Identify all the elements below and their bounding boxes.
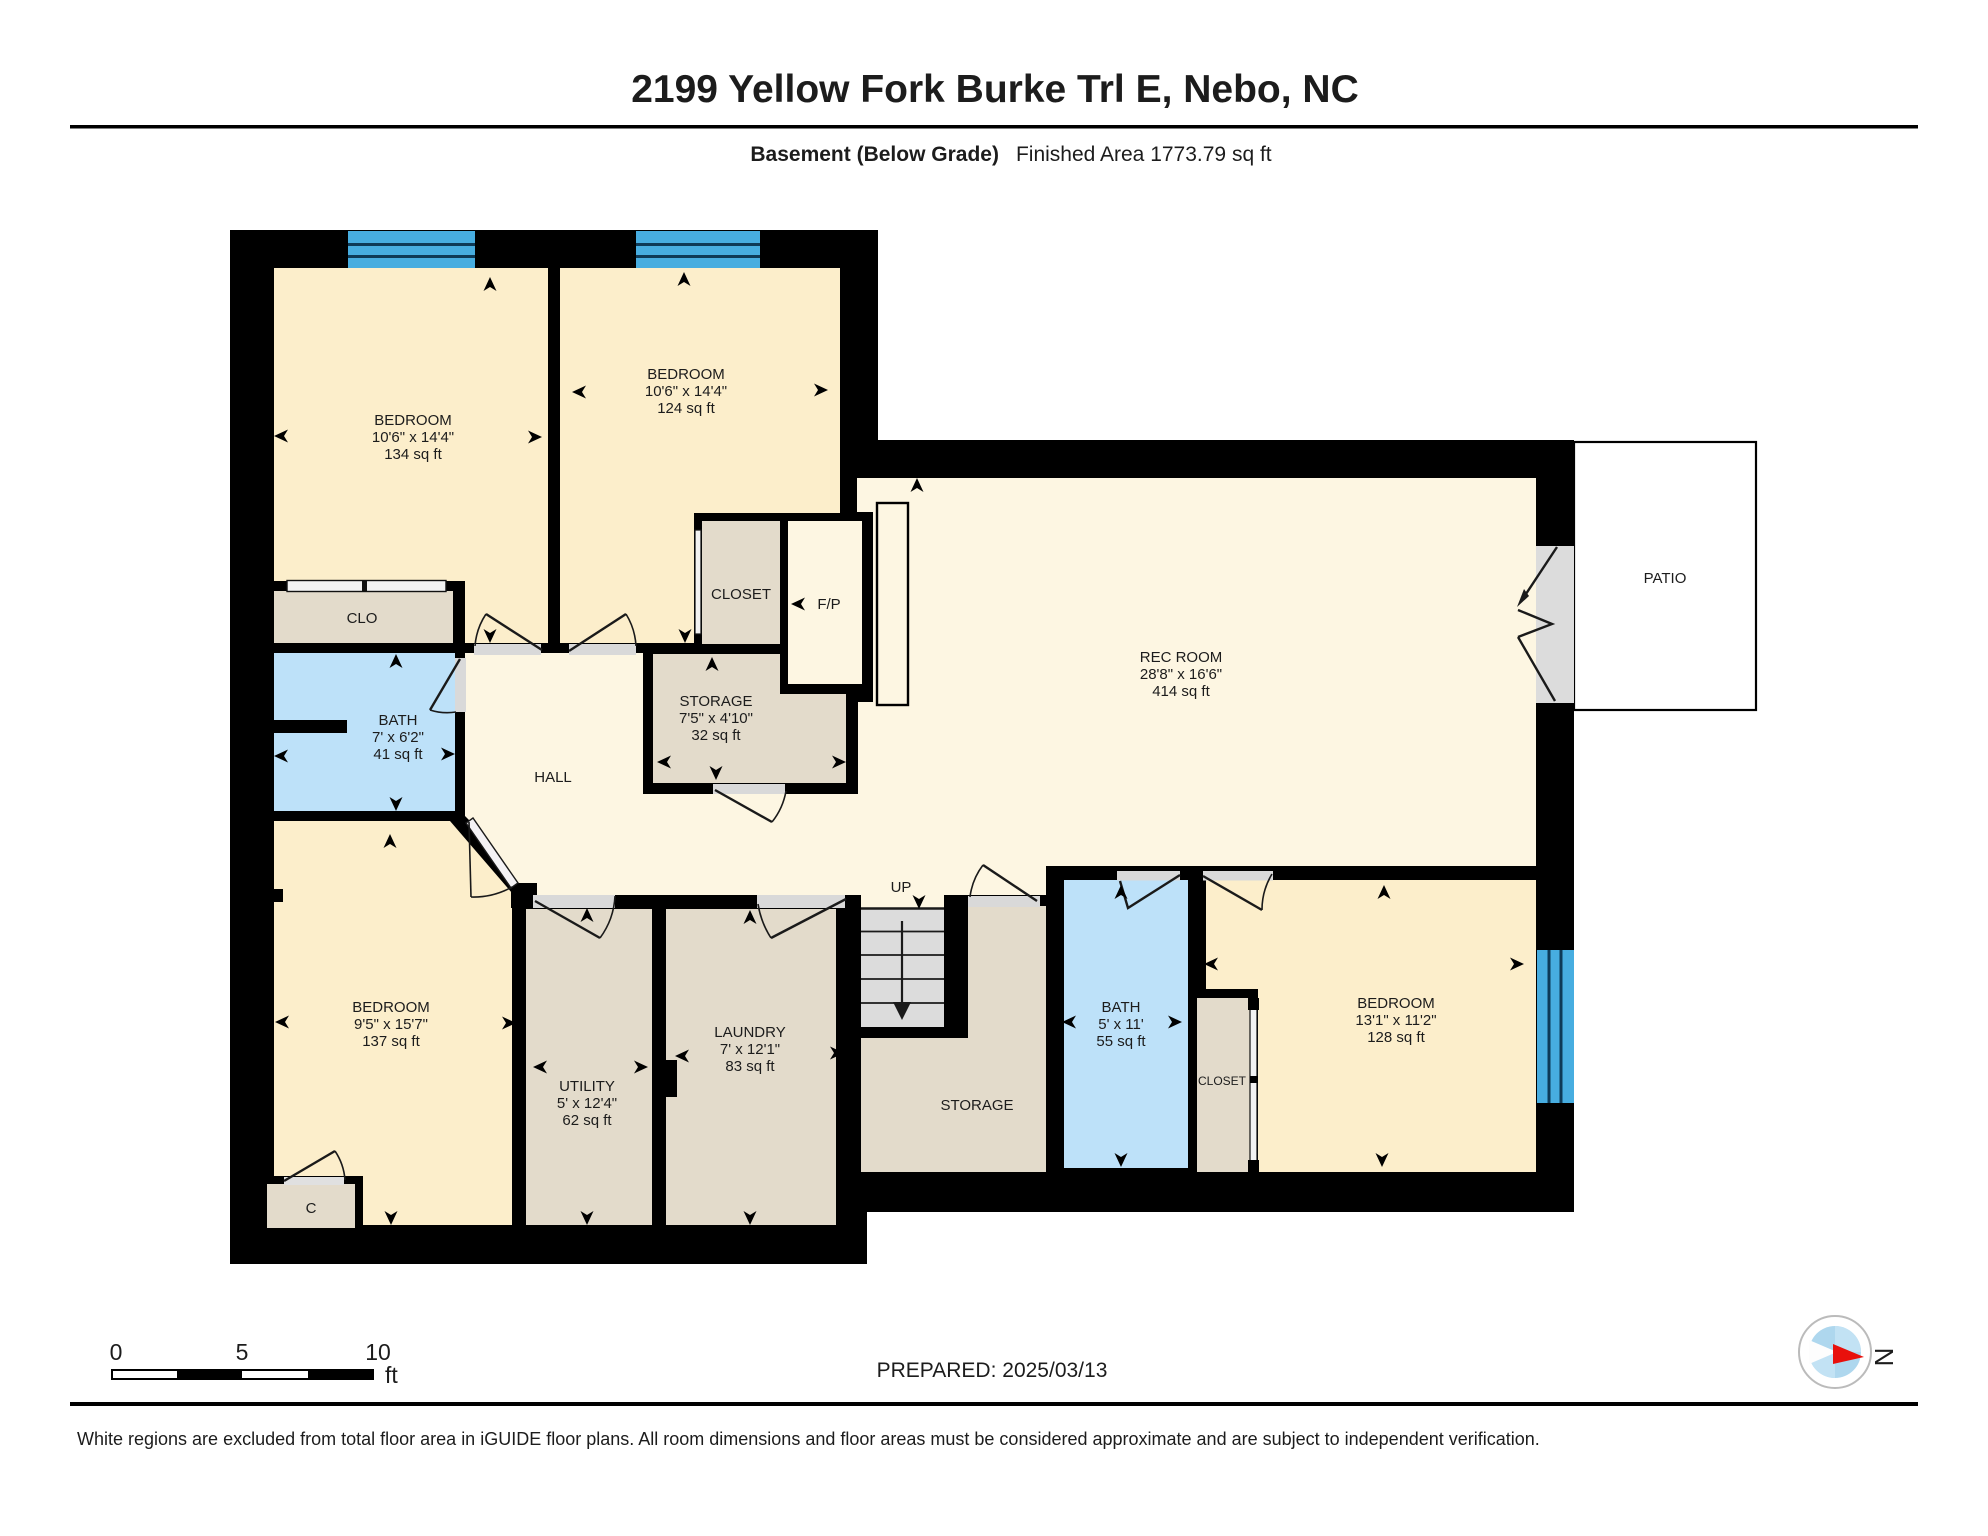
svg-text:ft: ft bbox=[385, 1362, 398, 1388]
svg-text:2199 Yellow Fork Burke Trl E,: 2199 Yellow Fork Burke Trl E, Nebo, NC bbox=[631, 68, 1359, 111]
svg-text:7' x 6'2": 7' x 6'2" bbox=[372, 729, 424, 746]
svg-text:7'5" x 4'10": 7'5" x 4'10" bbox=[679, 710, 753, 727]
svg-text:F/P: F/P bbox=[817, 596, 840, 613]
svg-text:137 sq ft: 137 sq ft bbox=[362, 1033, 420, 1050]
svg-text:C: C bbox=[306, 1200, 317, 1217]
svg-text:CLOSET: CLOSET bbox=[1198, 1074, 1247, 1088]
svg-text:N: N bbox=[1869, 1348, 1899, 1367]
svg-text:UP: UP bbox=[891, 879, 912, 896]
svg-text:STORAGE: STORAGE bbox=[940, 1097, 1013, 1114]
svg-text:BEDROOM: BEDROOM bbox=[647, 366, 725, 383]
svg-text:LAUNDRY: LAUNDRY bbox=[714, 1024, 785, 1041]
svg-text:CLOSET: CLOSET bbox=[711, 586, 771, 603]
svg-text:7' x 12'1": 7' x 12'1" bbox=[720, 1041, 780, 1058]
svg-text:55 sq ft: 55 sq ft bbox=[1096, 1033, 1146, 1050]
svg-text:62 sq ft: 62 sq ft bbox=[562, 1112, 612, 1129]
svg-text:28'8" x 16'6": 28'8" x 16'6" bbox=[1140, 666, 1222, 683]
svg-text:41 sq ft: 41 sq ft bbox=[373, 746, 423, 763]
svg-text:10'6" x 14'4": 10'6" x 14'4" bbox=[372, 429, 454, 446]
svg-text:9'5" x 15'7": 9'5" x 15'7" bbox=[354, 1016, 428, 1033]
svg-text:414 sq ft: 414 sq ft bbox=[1152, 683, 1210, 700]
svg-text:5' x 12'4": 5' x 12'4" bbox=[557, 1095, 617, 1112]
svg-text:PATIO: PATIO bbox=[1644, 570, 1687, 587]
svg-text:128 sq ft: 128 sq ft bbox=[1367, 1029, 1425, 1046]
svg-text:CLO: CLO bbox=[347, 610, 378, 627]
svg-text:134 sq ft: 134 sq ft bbox=[384, 446, 442, 463]
svg-text:BEDROOM: BEDROOM bbox=[352, 999, 430, 1016]
svg-text:White regions are excluded fro: White regions are excluded from total fl… bbox=[77, 1429, 1540, 1449]
svg-text:124 sq ft: 124 sq ft bbox=[657, 400, 715, 417]
svg-text:BEDROOM: BEDROOM bbox=[1357, 995, 1435, 1012]
svg-text:HALL: HALL bbox=[534, 769, 572, 786]
svg-text:13'1" x 11'2": 13'1" x 11'2" bbox=[1355, 1012, 1436, 1029]
svg-text:BATH: BATH bbox=[379, 712, 418, 729]
svg-text:BEDROOM: BEDROOM bbox=[374, 412, 452, 429]
svg-text:BATH: BATH bbox=[1102, 999, 1141, 1016]
svg-text:PREPARED: 2025/03/13: PREPARED: 2025/03/13 bbox=[877, 1359, 1108, 1382]
svg-text:83 sq ft: 83 sq ft bbox=[725, 1058, 775, 1075]
svg-text:STORAGE: STORAGE bbox=[679, 693, 752, 710]
svg-text:5: 5 bbox=[236, 1339, 249, 1365]
svg-text:REC ROOM: REC ROOM bbox=[1140, 649, 1223, 666]
svg-text:10'6" x 14'4": 10'6" x 14'4" bbox=[645, 383, 727, 400]
svg-text:5' x 11': 5' x 11' bbox=[1098, 1016, 1144, 1033]
svg-text:UTILITY: UTILITY bbox=[559, 1078, 615, 1095]
svg-text:32 sq ft: 32 sq ft bbox=[691, 727, 741, 744]
svg-text:0: 0 bbox=[110, 1339, 123, 1365]
